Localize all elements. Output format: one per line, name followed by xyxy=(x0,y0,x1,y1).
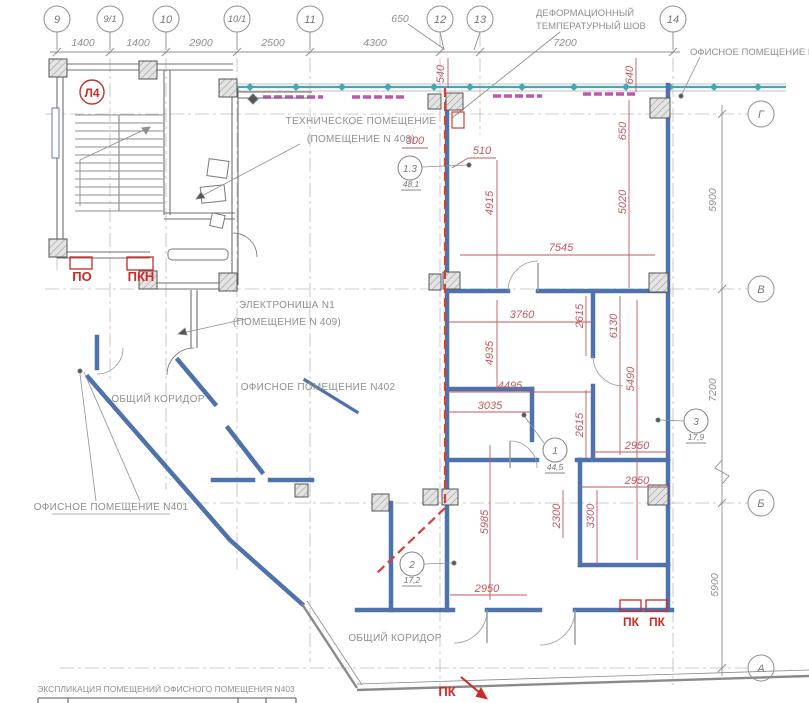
red-dim-2950-b: 2950 xyxy=(624,475,650,487)
pk-label-c: ПК xyxy=(438,684,455,699)
red-dim-4915: 4915 xyxy=(484,190,496,215)
stair-tag-label: Л4 xyxy=(84,86,99,100)
axis-bubble-9: 9 xyxy=(54,14,60,26)
pk-label-a: ПК xyxy=(623,615,640,629)
window-left xyxy=(52,108,59,158)
room-label-tech-2: (ПОМЕЩЕНИЕ N 408) xyxy=(307,134,415,145)
dim-top-0: 1400 xyxy=(71,37,95,49)
axis-bubble-g: Г xyxy=(758,109,765,121)
red-dim-300: 300 xyxy=(406,135,425,147)
table-grid xyxy=(38,698,296,703)
dim-right-2: 5900 xyxy=(709,573,721,597)
exterior-bottom xyxy=(302,601,809,690)
door-swings xyxy=(97,261,623,645)
tech-room-equipment xyxy=(168,94,258,260)
axis-bubble-12: 12 xyxy=(434,14,446,26)
dim-top-5: 650 xyxy=(391,13,409,25)
red-dim-2300: 2300 xyxy=(551,503,563,529)
area-tag-1-num: 1 xyxy=(552,446,558,457)
walls-blue xyxy=(88,85,672,610)
dim-top-2: 2900 xyxy=(188,37,213,49)
dim-top-1: 1400 xyxy=(126,37,150,49)
floor-plan-canvas: 9 9/1 10 10/1 11 12 13 14 Г В Б А 1400 1… xyxy=(0,0,809,703)
red-dim-5020: 5020 xyxy=(617,189,629,214)
room-label-niche-1: ЭЛЕКТРОНИША N1 xyxy=(239,300,335,311)
axis-bubble-10-1: 10/1 xyxy=(228,14,247,25)
pkn-label: ПКН xyxy=(128,269,155,284)
red-dim-640: 640 xyxy=(624,65,636,84)
joint-note-line1: ДЕФОРМАЦИОННЫЙ xyxy=(536,7,634,19)
axis-bubble-a: А xyxy=(756,663,764,675)
area-tag-3-num: 3 xyxy=(693,417,699,428)
red-dim-540: 540 xyxy=(435,64,447,83)
red-dim-2950-c: 2950 xyxy=(474,583,500,595)
dim-right-0: 5900 xyxy=(707,188,719,212)
red-dim-5490: 5490 xyxy=(625,366,637,391)
red-dim-3760: 3760 xyxy=(510,309,535,321)
area-tag-3-area: 17,9 xyxy=(688,432,705,442)
area-tag-1-3-num: 1.3 xyxy=(403,164,417,175)
axis-bubble-14: 14 xyxy=(667,14,679,26)
red-dim-4935: 4935 xyxy=(484,340,496,365)
area-tag-1-area: 44,5 xyxy=(547,462,564,472)
red-dim-2615-bot: 2615 xyxy=(574,412,586,438)
pk-label-b: ПК xyxy=(649,615,666,629)
room-label-n404: ОФИСНОЕ ПОМЕЩЕНИЕ N404 xyxy=(690,47,809,58)
red-dim-6130: 6130 xyxy=(608,313,620,338)
room-label-n402: ОФИСНОЕ ПОМЕЩЕНИЕ N402 xyxy=(241,382,396,393)
axis-bubble-b: Б xyxy=(757,498,764,510)
axis-bubble-11: 11 xyxy=(304,14,315,26)
floor-plan-svg: 9 9/1 10 10/1 11 12 13 14 Г В Б А 1400 1… xyxy=(0,0,809,703)
room-label-n401: ОФИСНОЕ ПОМЕЩЕНИЕ N401 xyxy=(34,502,189,513)
wall-diagonal-exterior xyxy=(88,377,302,604)
grid-lines xyxy=(45,33,748,698)
room-label-corridor-bottom: ОБЩИЙ КОРИДОР xyxy=(348,631,441,644)
joint-note-line2: ТЕМПЕРАТУРНЫЙ ШОВ xyxy=(536,20,646,32)
dim-top-3: 2500 xyxy=(260,37,285,49)
red-dim-650: 650 xyxy=(617,121,629,140)
facade-glazing xyxy=(228,83,786,97)
red-dim-4495: 4495 xyxy=(498,380,523,392)
red-dim-3300: 3300 xyxy=(585,503,597,528)
red-dim-3035: 3035 xyxy=(478,400,503,412)
room-label-niche-2: (ПОМЕЩЕНИЕ N 409) xyxy=(233,317,341,328)
area-tag-2-area: 17,2 xyxy=(404,575,421,585)
room-label-corridor-left: ОБЩИЙ КОРИДОР xyxy=(111,392,204,405)
axis-bubble-9-1: 9/1 xyxy=(103,14,116,25)
area-tag-2-num: 2 xyxy=(408,560,415,571)
dim-right-1: 7200 xyxy=(707,378,719,402)
table-title: ЭКСПЛИКАЦИЯ ПОМЕЩЕНИЙ ОФИСНОГО ПОМЕЩЕНИЯ… xyxy=(37,683,295,694)
level-mark xyxy=(248,94,258,104)
dim-top-4: 4300 xyxy=(363,37,387,49)
red-dim-2950-a: 2950 xyxy=(624,440,650,452)
red-dim-7545: 7545 xyxy=(549,242,574,254)
po-label: ПО xyxy=(72,269,91,284)
red-dim-5985: 5985 xyxy=(479,509,491,534)
axis-bubble-13: 13 xyxy=(474,14,487,26)
red-dim-2615-top: 2615 xyxy=(574,303,586,329)
axis-bubble-10: 10 xyxy=(160,14,173,26)
area-tag-1-3-area: 48,1 xyxy=(403,179,420,189)
po-box xyxy=(70,257,92,269)
red-dim-510: 510 xyxy=(473,145,492,157)
room-label-tech-1: ТЕХНИЧЕСКОЕ ПОМЕЩЕНИЕ xyxy=(286,116,437,127)
dim-top-6: 7200 xyxy=(553,37,577,49)
axis-bubble-v: В xyxy=(757,284,764,296)
staircase xyxy=(52,108,163,211)
